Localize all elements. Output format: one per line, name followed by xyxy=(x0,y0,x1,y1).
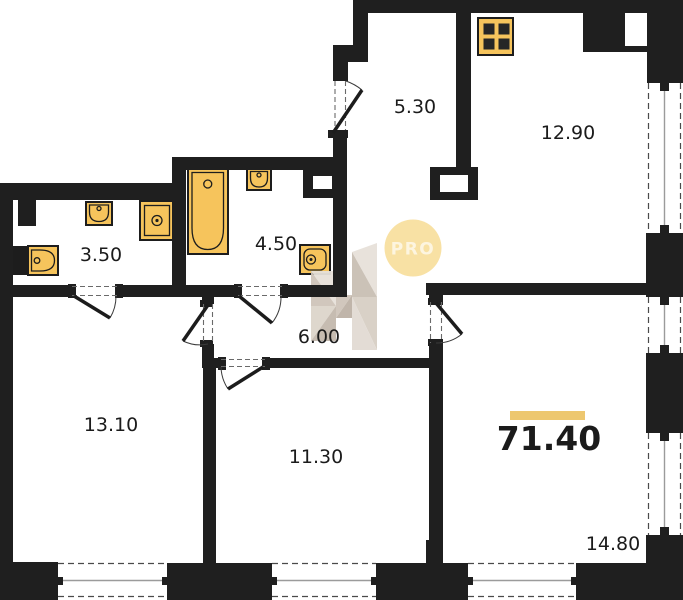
sink-icon xyxy=(86,202,112,225)
room-14-door xyxy=(431,302,463,343)
toilet-icon xyxy=(300,245,330,274)
stove-icon xyxy=(478,18,513,55)
fixtures xyxy=(13,16,622,275)
room-area-label-bath: 4.50 xyxy=(255,233,297,255)
room-area-label-entry: 5.30 xyxy=(394,96,436,118)
bathtub-icon xyxy=(188,168,228,254)
room-11-door xyxy=(221,360,265,390)
floor-plan: PRO 5.30 12.90 3.50 4.50 6.00 13.10 11.3… xyxy=(0,0,683,600)
wash-basin-icon xyxy=(13,246,58,275)
total-area-label: 71.40 xyxy=(497,419,601,458)
pro-badge-label: PRO xyxy=(391,240,436,260)
bathroom-small-door xyxy=(72,287,117,319)
floor-plan-canvas: PRO 5.30 12.90 3.50 4.50 6.00 13.10 11.3… xyxy=(0,0,683,600)
pro-badge: PRO xyxy=(385,220,442,277)
room-13-door xyxy=(183,304,213,345)
washing-machine-icon xyxy=(140,201,174,240)
total-area: 71.40 xyxy=(497,411,601,458)
room-area-label-room11: 11.30 xyxy=(289,446,343,468)
room-area-label-room14: 14.80 xyxy=(586,533,640,555)
entrance-door xyxy=(333,81,362,133)
room-area-label-kitchen: 12.90 xyxy=(541,122,595,144)
room-area-label-room13: 13.10 xyxy=(84,414,138,436)
bathroom-door xyxy=(238,287,282,324)
room-area-label-hallway: 6.00 xyxy=(298,326,340,348)
sink-icon-2 xyxy=(247,168,271,190)
room-area-label-bath-small: 3.50 xyxy=(80,244,122,266)
